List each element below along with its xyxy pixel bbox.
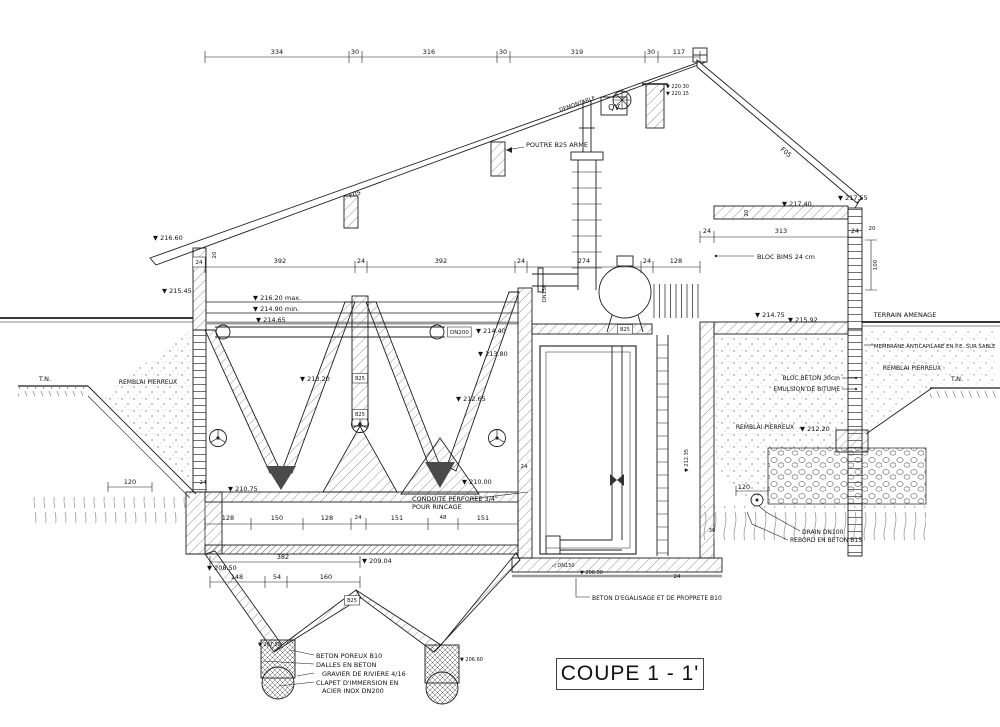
filter-basins [205,292,519,554]
elev-206-60: ▼ 206.60 [460,657,483,663]
elev-212-35: ▼ 212.35 [684,449,690,472]
agitator-icon [489,430,506,447]
elev-214-90-min: ▼ 214.90 min. [253,305,299,313]
label-conduite-1: CONDUITE PERFOREE 3/4" [412,495,498,503]
dim-334: 334 [271,48,283,56]
dim-36: 36 [709,528,716,534]
elev-208-50: ▼ 208.50 [207,564,237,572]
dim-160: 160 [320,573,332,581]
dim-30c: 30 [647,48,655,56]
elev-220-30: ▼ 220.30 [666,84,689,90]
dim-392a: 392 [274,257,286,265]
label-clapet-1: CLAPET D'IMMERSION EN [316,679,399,687]
dim-24d: 24 [703,227,711,235]
label-remblai-right-lower: REMBLAI PIERREUX [736,424,794,431]
dim-54: 54 [273,573,281,581]
elev-214-40: ▼ 214.40 [476,327,506,335]
label-qv: QV [608,103,620,112]
label-b25-floor: B25 [620,327,630,333]
dim-128c: 128 [321,514,333,522]
dim-128b: 128 [222,514,234,522]
label-dalles: DALLES EN BETON [316,661,377,669]
grille [654,284,698,318]
dim-20-eave: 20 [212,251,218,258]
elev-216-20-max: ▼ 216.20 max. [253,294,301,302]
label-conduite-2: POUR RINCAGE [412,503,462,511]
dim-24a: 24 [357,257,365,265]
label-dn150-horizontal: ◁ DN150 [552,563,575,569]
pump-room [512,100,722,576]
label-b25-column-1: B25 [355,376,365,382]
dim-120-right: 120 [738,483,750,491]
dim-20c: 20 [744,209,750,216]
label-emulsion: EMULSION DE BITUME [773,386,840,393]
coupe-section-drawing: 3343031630319301173922439224274241282420… [0,0,1000,727]
dim-120-left: 120 [124,478,136,486]
roof-post [344,196,358,228]
dim-148: 148 [231,573,243,581]
elev-210-00: ▼ 210.00 [462,478,492,486]
elev-216-60: ▼ 216.60 [153,234,183,242]
dim-150: 150 [271,514,283,522]
dim-382: 382 [277,553,289,561]
dim-313: 313 [775,227,787,235]
elev-215-45: ▼ 215.45 [162,287,192,295]
label-rebord: REBORD EN BETON B15 [790,537,862,544]
label-clapet-2: ACIER INOX DN200 [322,687,384,695]
label-bloc-beton: BLOC BETON 30cm [782,375,840,382]
label-dn150-vertical: DN150 [542,285,548,302]
elev-212-65: ▼ 212.65 [456,395,486,403]
label-f05-right: F05 [779,145,793,159]
elev-207-58: ▼ 207.58 [258,642,281,648]
elev-210-75: ▼ 210.75 [228,485,258,493]
dim-319: 319 [571,48,583,56]
dim-392b: 392 [435,257,447,265]
dim-100: 100 [873,259,879,270]
dim-30b: 30 [499,48,507,56]
label-remblai-right-upper: REMBLAI PIERREUX [883,365,941,372]
elev-208-90: ▼ 208.90 [580,570,603,576]
elev-212-20: ▼ 212.20 [800,425,830,433]
elev-214-65: ▼ 214.65 [256,316,286,324]
label-remblai-left: REMBLAI PIERREUX [119,379,177,386]
label-membrane: MEMBRANE ANTICAPILARE EN P.E. SUR SABLE [874,344,996,350]
drawing-page: 3343031630319301173922439224274241282420… [0,0,1000,727]
rubble-drain [768,448,926,504]
section-title: COUPE 1 - 1' [561,662,700,686]
elev-217-55: ▼ 217.55 [838,194,868,202]
label-beton-egalisage: BETON D'EGALISAGE ET DE PROPRETE B10 [592,595,722,602]
label-drain: DRAIN DN100 [802,529,844,536]
dim-48: 48 [440,515,447,521]
structure-layer [0,48,1000,704]
dim-24b: 24 [517,257,525,265]
label-terrain-amenage: TERRAIN AMENAGE [873,311,937,319]
label-beton-poreux: BETON POREUX B10 [316,652,382,660]
elev-217-40: ▼ 217.40 [782,200,812,208]
dim-151b: 151 [477,514,489,522]
valve-icon [610,474,617,486]
roof-beam [491,142,505,176]
label-dn200: DN200 [450,330,469,336]
dim-316: 316 [423,48,435,56]
dim-24g: 24 [521,464,528,470]
dim-274: 274 [578,257,590,265]
dim-24i: 24 [674,574,681,580]
agitator-icon [210,430,227,447]
dim-24e: 24 [851,227,859,235]
label-poutre: POUTRE B25 ARME [526,141,588,149]
label-gravier: GRAVIER DE RIVIERE 4/16 [322,670,406,678]
label-tn-right: T.N. [950,375,963,383]
elev-213-80: ▼ 213.80 [478,350,508,358]
elev-220-15: ▼ 220.15 [666,91,689,97]
label-bloc-bims: BLOC BIMS 24 cm [757,253,815,261]
pressure-vessel [599,266,651,318]
ladder [657,345,668,553]
dim-24h: 24 [355,515,362,521]
dim-151a: 151 [391,514,403,522]
dim-24f: 24 [200,480,207,486]
dim-128a: 128 [670,257,682,265]
elev-209-04: ▼ 209.04 [362,557,392,565]
dim-30a: 30 [351,48,359,56]
label-b25-bottom: B25 [347,598,357,604]
label-tn-left: T.N. [38,375,51,383]
dim-24c: 24 [643,257,651,265]
elev-214-75: ▼ 214.75 [755,311,785,319]
label-b25-column-2: B25 [355,412,365,418]
title-block: COUPE 1 - 1' [556,658,704,690]
dim-20b: 20 [869,226,876,232]
roof [150,48,862,265]
elev-213-20: ▼ 213.20 [300,375,330,383]
dim-24-wall: 24 [196,260,203,266]
elev-215-92: ▼ 215.92 [788,316,818,324]
dim-117: 117 [673,48,685,56]
